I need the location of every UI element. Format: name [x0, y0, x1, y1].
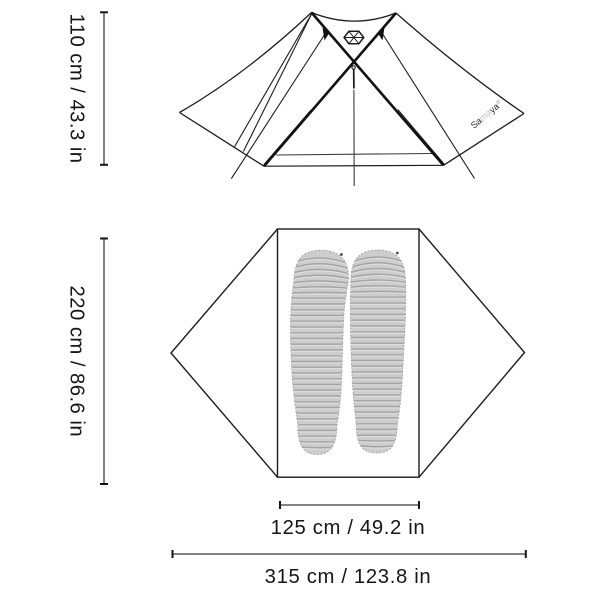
svg-text:220 cm / 86.6 in: 220 cm / 86.6 in — [65, 286, 87, 438]
svg-text:125 cm / 49.2 in: 125 cm / 49.2 in — [271, 517, 426, 539]
svg-text:315 cm / 123.8 in: 315 cm / 123.8 in — [265, 566, 432, 588]
svg-text:110 cm / 43.3 in: 110 cm / 43.3 in — [65, 14, 87, 164]
